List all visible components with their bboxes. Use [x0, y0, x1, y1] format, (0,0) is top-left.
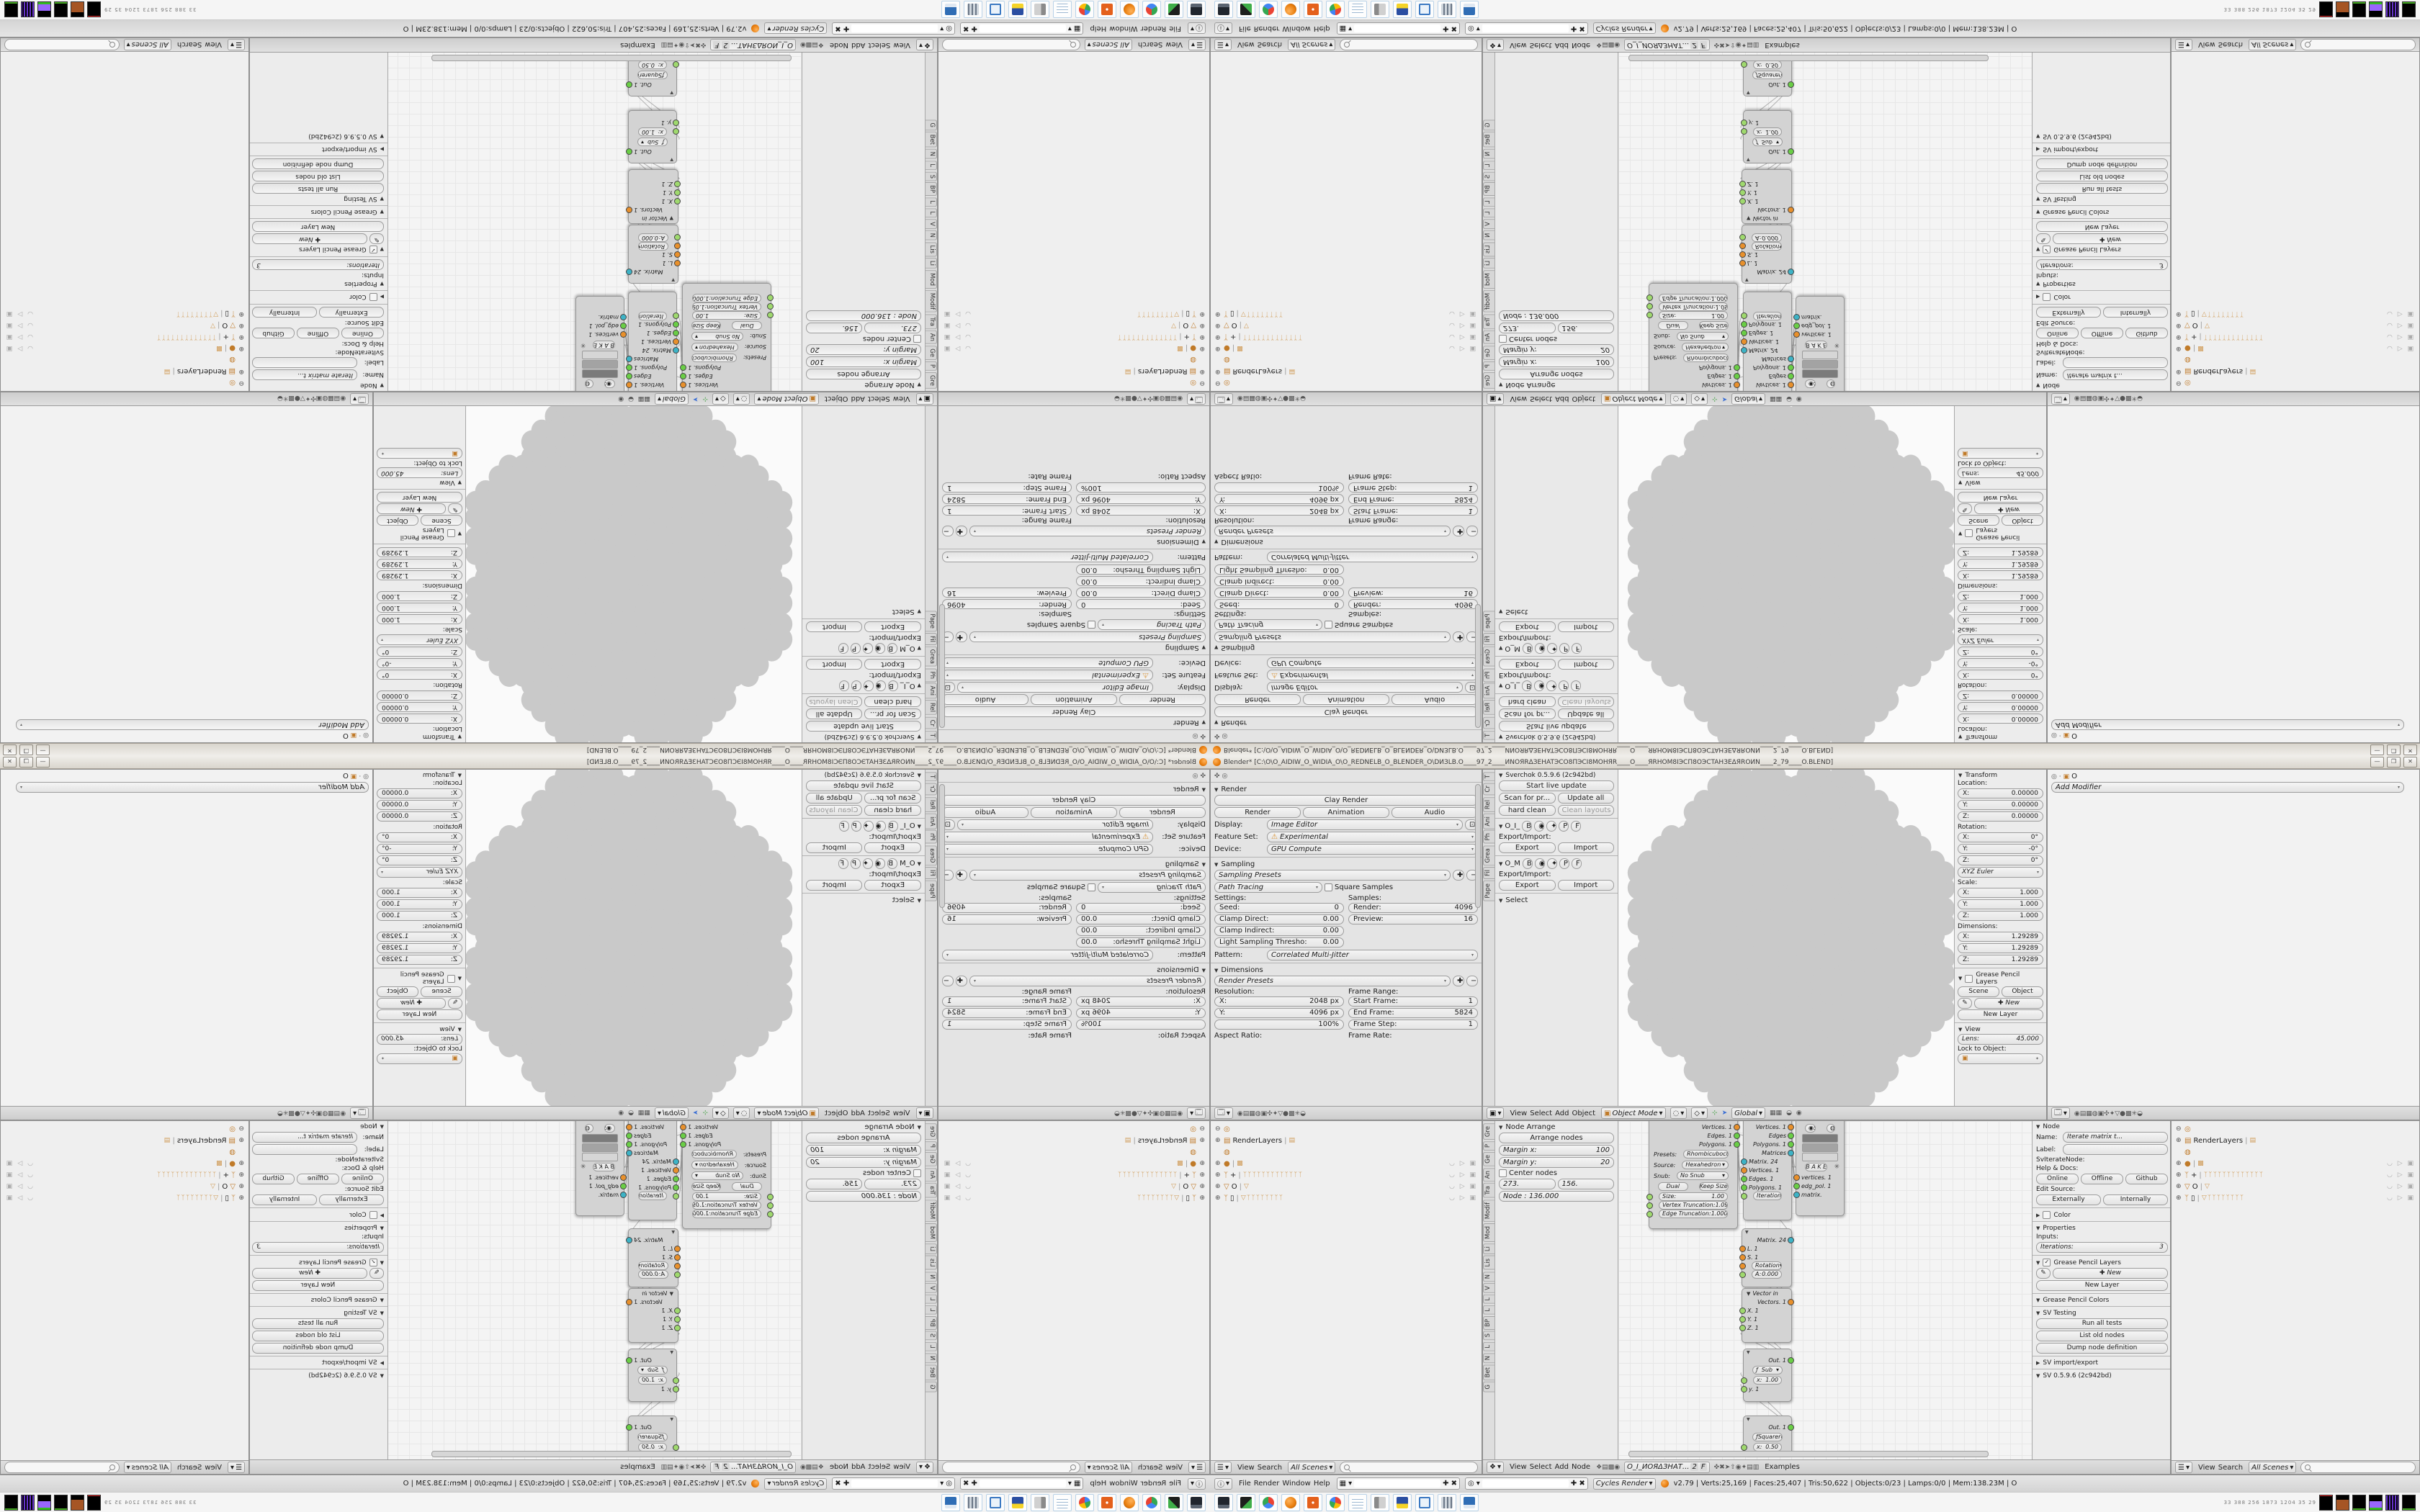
properties-tab-icon[interactable]: ▤: [2080, 1110, 2087, 1117]
screen-layout-selector[interactable]: ▦▾✚ ✖: [1337, 1477, 1460, 1490]
properties-tab-icon[interactable]: ▤: [2080, 395, 2087, 402]
taskbar-app-browser[interactable]: [1142, 1, 1161, 19]
scale-field[interactable]: Z:1.000: [1958, 911, 2043, 921]
outliner-row[interactable]: ⊕ᛉ▯|▽ᛉᛉᛉᛉᛉᛉᛉᛉ◡ ▷ ▣: [2172, 308, 2419, 320]
collapse-triangle-icon[interactable]: ▼: [1202, 968, 1206, 973]
gp-panel-title[interactable]: Grease Pencil Layers: [299, 246, 367, 253]
add-modifier-dropdown[interactable]: Add Modifier▾: [2051, 782, 2404, 793]
panel-title-render[interactable]: Render: [1173, 786, 1199, 793]
operation-dropdown[interactable]: ƒ Squareroot▾: [637, 1433, 668, 1441]
window-maximize-button[interactable]: ❐: [19, 744, 33, 755]
node-header-icon[interactable]: ▩: [1608, 41, 1615, 48]
socket-rotation[interactable]: [1739, 243, 1746, 249]
node-header-icon[interactable]: ▤: [1747, 1464, 1753, 1471]
panel-title-render[interactable]: Render: [1221, 719, 1247, 726]
window-close-button[interactable]: ✕: [3, 744, 17, 755]
node-header-icon[interactable]: ⇧: [684, 1464, 690, 1471]
vertex-truncation-field[interactable]: Vertex Truncation:1.094: [1659, 1201, 1728, 1210]
info-menu-item[interactable]: Render: [1139, 24, 1168, 32]
socket-vertices-in[interactable]: [673, 1167, 679, 1174]
dimension-field[interactable]: Z:1.29289: [1958, 955, 2043, 965]
gp-new-button[interactable]: ✚ New: [252, 233, 367, 244]
b-toggle-button[interactable]: B: [888, 680, 898, 691]
integrator-dropdown[interactable]: Path Tracing▾: [1098, 619, 1206, 630]
socket-polygons[interactable]: [1788, 364, 1794, 371]
outliner-row[interactable]: ⊕▽O|▽◡ ▷ ▣: [1211, 320, 1482, 331]
node-header-icon[interactable]: ➤: [690, 1464, 696, 1471]
import-button[interactable]: Import: [806, 621, 863, 632]
socket-x[interactable]: [1741, 61, 1747, 68]
node-collapse-icon[interactable]: ▼: [1799, 390, 1803, 391]
socket-edgpol-in[interactable]: [620, 1183, 627, 1189]
socket-size[interactable]: [1646, 1194, 1653, 1200]
socket-location[interactable]: [1739, 1246, 1746, 1252]
node-math-squareroot[interactable]: ▼ Out. 1 ƒ Squareroot▾ x:0.50: [1743, 58, 1792, 96]
properties-tab-icon[interactable]: ●: [295, 395, 300, 402]
node-menu-item[interactable]: Select: [866, 41, 892, 49]
dimension-field[interactable]: Z:1.29289: [377, 547, 462, 557]
node-toolshelf-tab[interactable]: Modif: [926, 290, 937, 312]
view3d-menu-item[interactable]: Select: [1528, 1110, 1554, 1117]
outliner-row[interactable]: ⊕▽O|▽◡ ▷ ▣: [938, 320, 1209, 331]
wire-toggle[interactable]: ◍: [1827, 379, 1835, 388]
node-header-icon[interactable]: ▩: [1608, 1464, 1615, 1471]
resolution-field[interactable]: Y:4096 px: [1214, 1008, 1344, 1018]
node-header-icon[interactable]: ❖: [818, 41, 824, 48]
presets-dropdown[interactable]: Rhombicuboctahedron▾: [691, 354, 737, 362]
node-toolshelf-tab[interactable]: L: [926, 1342, 937, 1351]
scale-field[interactable]: Y:1.000: [1958, 603, 2043, 613]
outliner-row[interactable]: ⊕●|▩◡ ▷ ▣: [2172, 343, 2419, 354]
dump-node-definition-button[interactable]: Dump node definition: [252, 1343, 384, 1354]
internally-button[interactable]: Internally: [252, 1194, 317, 1205]
gp-scene-tab[interactable]: Scene: [421, 515, 462, 526]
node-toolshelf-tab[interactable]: Ge: [1483, 346, 1494, 360]
node-iterate-matrix[interactable]: ▼ Vertices. 1 Edges Polygons. 1 Matrices…: [1743, 292, 1792, 391]
display-mode-dropdown[interactable]: All Scenes▾: [1085, 1462, 1132, 1473]
gp-panel-title[interactable]: Grease Pencil Layers: [2053, 1259, 2121, 1266]
keep-size-button[interactable]: Keep Size: [1699, 321, 1729, 330]
frame-range-field[interactable]: Frame Step:1: [942, 482, 1072, 492]
select-panel-title[interactable]: Select: [1505, 896, 1528, 904]
outliner-row[interactable]: ⊕ᛉ▯|▽ᛉᛉᛉᛉᛉᛉᛉᛉ◡ ▷ ▣: [1211, 1192, 1482, 1204]
tray-graph-icon[interactable]: [87, 2, 101, 18]
node-header-icon[interactable]: ▤: [812, 41, 818, 48]
outliner-row[interactable]: ⊕▽O|▽◡ ▷ ▣: [2172, 1181, 2419, 1192]
source-dropdown[interactable]: Hexahedron▾: [691, 1161, 738, 1169]
outliner-row[interactable]: ⊕▤RenderLayers|▤: [1211, 366, 1482, 377]
update-all-button[interactable]: Update all: [806, 708, 863, 719]
snub-dropdown[interactable]: No Snub▾: [691, 1171, 743, 1180]
toolshelf-tab[interactable]: Cr: [926, 716, 937, 729]
polygon-color-swatch[interactable]: [1802, 351, 1838, 359]
taskbar-app-speaker[interactable]: [1031, 1, 1049, 19]
editor-type-button[interactable]: 🗔▾: [350, 393, 369, 405]
view3d-menu-item[interactable]: View: [1508, 395, 1528, 403]
socket-z[interactable]: [674, 1325, 681, 1331]
start-live-update-button[interactable]: Start live update: [806, 721, 921, 732]
info-menu-item[interactable]: Window: [1281, 1480, 1312, 1488]
collapse-triangle-icon[interactable]: ▼: [458, 976, 462, 981]
keep-size-button[interactable]: Keep Size: [691, 321, 722, 330]
outliner-row[interactable]: ⊕▽O|▽◡ ▷ ▣: [2172, 320, 2419, 331]
taskbar-app-imageviewer[interactable]: [986, 1494, 1005, 1511]
collapse-triangle-icon[interactable]: ▼: [1958, 976, 1962, 981]
node-vector-in[interactable]: ▼Vector in Vectors. 1 X. 1 Y. 1 Z. 1: [628, 1288, 678, 1343]
node-header-icon[interactable]: ◉: [678, 41, 684, 48]
node-toolshelf-tab[interactable]: V: [926, 1283, 937, 1293]
bake-button[interactable]: B A K E: [593, 1163, 615, 1171]
info-menu-item[interactable]: Window: [1281, 24, 1312, 32]
gp-panel-title[interactable]: Grease Pencil Layers: [2053, 246, 2121, 253]
toolshelf-tab[interactable]: Pape: [926, 881, 937, 901]
grease-pencil-panel-title[interactable]: Grease Pencil Layers: [377, 526, 444, 541]
node-toolshelf-tab[interactable]: N: [1483, 1272, 1494, 1282]
properties-tab-icon[interactable]: ✳: [2132, 395, 2138, 402]
shading-dropdown[interactable]: ◌▾: [1670, 1107, 1688, 1119]
center-nodes-checkbox[interactable]: [913, 1169, 921, 1177]
bake-button[interactable]: B A K E: [593, 341, 615, 349]
node-viewer-draw[interactable]: ▼ ◉ Show◍ B A K E✳ vertices. 1 edg_pol. …: [1796, 1121, 1845, 1216]
layers-grid-icon[interactable]: ▦▦: [638, 1110, 650, 1117]
properties-tab-icon[interactable]: ▦: [1165, 1110, 1171, 1117]
frame-range-field[interactable]: End Frame:5824: [1348, 1008, 1478, 1018]
hard-clean-button[interactable]: hard clean: [1499, 696, 1556, 707]
location-field[interactable]: Y:0.00000: [377, 800, 462, 810]
socket-size[interactable]: [767, 1194, 774, 1200]
socket-x[interactable]: [673, 128, 679, 135]
gear-icon[interactable]: ✳: [581, 1164, 586, 1171]
properties-tab-icon[interactable]: ▤: [1171, 395, 1178, 402]
outliner-menu-item[interactable]: View: [2197, 41, 2217, 49]
resolution-field[interactable]: Y:4096 px: [1076, 494, 1206, 504]
node-menu-item[interactable]: Add: [850, 1463, 866, 1471]
clay-render-button[interactable]: Clay Render: [1214, 795, 1478, 806]
socket-size[interactable]: [1646, 312, 1653, 318]
outliner-menu-item[interactable]: View: [203, 41, 223, 49]
view3d-menu-item[interactable]: Object: [823, 395, 850, 403]
tray-graph-icon[interactable]: [2336, 2, 2349, 18]
view3d-menu-item[interactable]: Add: [850, 395, 866, 403]
center-nodes-checkbox[interactable]: [1499, 1169, 1507, 1177]
outliner-menu-item[interactable]: Search: [176, 1464, 203, 1472]
node-toolshelf-tab[interactable]: Gre: [1483, 1123, 1494, 1140]
node-collapse-icon[interactable]: ▼: [1747, 1121, 1750, 1122]
toolshelf-tab[interactable]: Cr: [1483, 716, 1494, 729]
outliner-row[interactable]: ⊖◎: [1211, 1123, 1482, 1135]
properties-tab-icon[interactable]: ▤: [1243, 1110, 1250, 1117]
transform-panel-title[interactable]: Transform: [423, 733, 455, 740]
scale-field[interactable]: X:1.000: [1958, 614, 2043, 624]
color-checkbox[interactable]: [369, 293, 377, 301]
node-header-icon[interactable]: ▤: [1602, 1464, 1608, 1471]
outliner-row[interactable]: ⊕ᛉ+|ᛉᛉᛉᛉᛉᛉᛉᛉᛉᛉᛉᛉᛉ◡ ▷ ▣: [938, 331, 1209, 343]
node-toolshelf-tab[interactable]: Li: [1483, 1243, 1494, 1254]
frame-range-field[interactable]: Frame Step:1: [1348, 482, 1478, 492]
size-field[interactable]: Size:1.00: [1659, 311, 1728, 320]
taskbar-app-browser[interactable]: [1259, 1494, 1278, 1511]
node-header-icon[interactable]: ⇧: [1730, 41, 1736, 48]
toolshelf-tab[interactable]: Fil: [926, 867, 937, 879]
node-collapse-icon[interactable]: ▼: [1747, 90, 1750, 95]
collapse-triangle-icon[interactable]: ▼: [918, 683, 921, 689]
editor-type-button[interactable]: ❖▾: [1487, 40, 1504, 51]
node-toolshelf-tab[interactable]: L: [926, 197, 937, 207]
x-field[interactable]: x:1.00: [638, 127, 667, 136]
node-toolshelf-tab[interactable]: N: [926, 1272, 937, 1282]
properties-tab-icon[interactable]: ◉: [1237, 1110, 1243, 1117]
node-vector-in[interactable]: ▼Vector in Vectors. 1 X. 1 Y. 1 Z. 1: [1742, 1288, 1792, 1343]
pencil-icon[interactable]: ✎: [369, 233, 384, 244]
node-header-icon[interactable]: ▥: [661, 41, 668, 48]
node-header-icon[interactable]: ◉: [800, 1464, 806, 1471]
node-menu-item[interactable]: Select: [1528, 1463, 1554, 1471]
render-camera-icon[interactable]: ◉: [1796, 1110, 1802, 1117]
sampling-presets-dropdown[interactable]: Sampling Presets▾: [969, 870, 1206, 881]
display-mode-dropdown[interactable]: All Scenes▾: [124, 1462, 171, 1473]
resolution-field[interactable]: 100%: [1214, 482, 1344, 492]
x-coordinate-field[interactable]: 273.: [865, 323, 922, 333]
collapse-triangle-icon[interactable]: ▼: [1958, 480, 1962, 485]
outliner-row[interactable]: ⊕ᛉ+|ᛉᛉᛉᛉᛉᛉᛉᛉᛉᛉᛉᛉᛉ◡ ▷ ▣: [1211, 1169, 1482, 1181]
internally-button[interactable]: Internally: [2103, 307, 2168, 318]
socket-edgpol-in[interactable]: [620, 323, 627, 329]
properties-tab-icon[interactable]: ▦: [1249, 1110, 1255, 1117]
editor-type-button[interactable]: ❖▾: [916, 40, 933, 51]
view3d-menu-item[interactable]: View: [892, 395, 912, 403]
fractal-mesh-object[interactable]: [465, 406, 802, 742]
audio-button[interactable]: Audio: [942, 807, 1028, 818]
taskbar-app-notepad[interactable]: [1348, 1494, 1367, 1511]
edge-color-swatch[interactable]: [582, 1143, 618, 1152]
internally-button[interactable]: Internally: [2103, 1194, 2168, 1205]
collapse-triangle-icon[interactable]: ▼: [458, 773, 462, 778]
properties-tab-icon[interactable]: ▦: [1249, 395, 1255, 402]
snub-dropdown[interactable]: No Snub▾: [1677, 332, 1729, 341]
outliner-row[interactable]: ◍: [1211, 354, 1482, 366]
socket-matrix-in[interactable]: [1741, 347, 1747, 354]
properties-tab-icon[interactable]: ▦: [1165, 395, 1171, 402]
display-mode-dropdown[interactable]: All Scenes▾: [1288, 39, 1335, 50]
collapse-triangle-icon[interactable]: ▼: [1499, 824, 1502, 829]
node-canvas[interactable]: ▼ Vertices. 1 Edges. 1 Polygons. 1 Prese…: [388, 53, 802, 391]
keep-size-button[interactable]: Keep Size: [1699, 1182, 1729, 1191]
editor-type-button[interactable]: ☰▾: [1188, 1462, 1206, 1473]
properties-tab-icon[interactable]: ◉: [1177, 395, 1183, 402]
rotation-order-dropdown[interactable]: XYZ Euler▾: [377, 634, 462, 645]
tray-graph-icon[interactable]: [54, 1495, 68, 1511]
samples-field[interactable]: Preview:16: [1348, 914, 1478, 924]
node-toolshelf-tab[interactable]: Modif: [1483, 290, 1494, 312]
taskbar-app-blender[interactable]: [1120, 1494, 1139, 1511]
scrollbar[interactable]: [939, 784, 945, 908]
taskbar-app-monitor[interactable]: [1187, 1, 1206, 19]
presets-dropdown[interactable]: Rhombicuboctahedron▾: [1683, 354, 1729, 362]
node-toolshelf-tab[interactable]: Tra: [926, 314, 937, 329]
add-preset-button[interactable]: ✚: [956, 870, 967, 881]
scale-field[interactable]: Z:1.000: [1958, 591, 2043, 601]
sampling-setting-field[interactable]: Clamp Direct:0.00: [1076, 588, 1206, 598]
outliner-row[interactable]: ⊕ᛉ+|ᛉᛉᛉᛉᛉᛉᛉᛉᛉᛉᛉᛉᛉ◡ ▷ ▣: [2172, 1169, 2419, 1181]
scan-properties-button[interactable]: Scan for pr...: [1499, 708, 1556, 719]
panel-title-render[interactable]: Render: [1221, 786, 1247, 793]
screen-layout-selector[interactable]: ▦▾✚ ✖: [1337, 22, 1460, 35]
socket-vertex-truncation[interactable]: [767, 1202, 774, 1209]
socket-matrix-in[interactable]: [1793, 1192, 1800, 1198]
screen-layout-selector[interactable]: ▦▾✚ ✖: [960, 22, 1083, 35]
view3d-menu-item[interactable]: Select: [866, 395, 892, 403]
properties-tab-icon[interactable]: ●: [1283, 395, 1289, 402]
gp-new-layer-button[interactable]: New Layer: [1958, 492, 2043, 503]
outliner-search-input[interactable]: [2300, 39, 2416, 50]
node-toolshelf-tab[interactable]: Gre: [926, 1123, 937, 1140]
x-coordinate-field[interactable]: 273.: [1499, 323, 1556, 333]
properties-tab-icon[interactable]: ✳: [283, 1110, 289, 1117]
view-panel-title[interactable]: View: [439, 479, 454, 486]
taskbar-app-speaker[interactable]: [1371, 1, 1389, 19]
collapse-triangle-icon[interactable]: ▼: [1499, 646, 1502, 652]
viewport-canvas[interactable]: [465, 770, 802, 1106]
outliner-row[interactable]: ⊕▽O|▽◡ ▷ ▣: [1, 1181, 248, 1192]
externally-button[interactable]: Externally: [2036, 1194, 2101, 1205]
feature-set-dropdown[interactable]: ⚠ Experimental▾: [1267, 670, 1478, 680]
node-name-input[interactable]: Iterate matrix t...: [2063, 1132, 2168, 1143]
scale-field[interactable]: X:1.000: [377, 614, 462, 624]
gp-object-tab[interactable]: Object: [377, 515, 418, 526]
properties-tab-icon[interactable]: ◍: [322, 1110, 328, 1117]
socket-rotation[interactable]: [674, 1263, 681, 1269]
b-toggle-button[interactable]: B: [888, 821, 898, 832]
render-presets-dropdown[interactable]: Render Presets▾: [1214, 976, 1451, 986]
arrange-nodes-button[interactable]: Arrange nodes: [806, 1133, 921, 1143]
node-collapse-icon[interactable]: ▼: [1652, 390, 1656, 391]
node-toolshelf-tab[interactable]: L: [926, 1305, 937, 1315]
socket-scale[interactable]: [674, 1254, 681, 1261]
sv-version-panel-title[interactable]: SV 0.5.9.6 (2c942bd): [2043, 132, 2111, 140]
screen-layout-selector[interactable]: ▦▾✚ ✖: [960, 1477, 1083, 1490]
properties-tab-icon[interactable]: ◉: [1237, 395, 1243, 402]
rotation-field[interactable]: Y:-0°: [377, 844, 462, 854]
properties-tab-icon[interactable]: ◒: [2137, 395, 2143, 402]
socket-matrix-out[interactable]: [1788, 1237, 1794, 1243]
socket-z[interactable]: [1739, 1325, 1746, 1331]
socket-vertices-in[interactable]: [1793, 331, 1800, 338]
socket-edges[interactable]: [626, 1133, 632, 1139]
y-coordinate-field[interactable]: 156.: [806, 323, 863, 333]
node-name-input[interactable]: Iterate matrix t...: [252, 369, 357, 380]
manipulator-move-icon[interactable]: ➤: [1722, 395, 1728, 402]
sv-testing-panel-title[interactable]: SV Testing: [344, 195, 377, 202]
properties-tab-icon[interactable]: ✣: [310, 1110, 316, 1117]
socket-location[interactable]: [674, 260, 681, 266]
socket-out[interactable]: [626, 148, 632, 155]
taskbar-app-browser2[interactable]: [1326, 1, 1345, 19]
manipulator-axis-icon[interactable]: ⊹: [702, 1110, 708, 1117]
properties-tab-icon[interactable]: ▤: [334, 395, 341, 402]
node-menu-item[interactable]: Add: [850, 41, 866, 49]
collapse-triangle-icon[interactable]: ▼: [918, 1125, 921, 1130]
outliner-menu-item[interactable]: Search: [2217, 1464, 2244, 1472]
export-button[interactable]: Export: [1499, 880, 1556, 891]
gp-new-button[interactable]: ✚ New: [1974, 998, 2043, 1009]
socket-z[interactable]: [674, 181, 681, 187]
presets-dropdown[interactable]: Rhombicuboctahedron▾: [1683, 1150, 1729, 1158]
editor-type-button[interactable]: 🗔▾: [1214, 1107, 1233, 1119]
node-toolshelf-tab[interactable]: L: [1483, 208, 1494, 217]
socket-matrix-out[interactable]: [1788, 269, 1794, 275]
hard-clean-button[interactable]: hard clean: [865, 805, 922, 816]
properties-tab-icon[interactable]: ◒: [277, 395, 283, 402]
socket-matrix-out[interactable]: [626, 269, 632, 275]
pin-icon[interactable]: ✜: [1214, 732, 1220, 739]
pencil-icon[interactable]: ✎: [1958, 998, 1972, 1009]
gp-object-tab[interactable]: Object: [2002, 986, 2043, 997]
node-collapse-icon[interactable]: ▼: [617, 390, 621, 391]
socket-matrix-in[interactable]: [1793, 314, 1800, 320]
node-toolshelf-tab[interactable]: L: [926, 161, 937, 170]
properties-tab-icon[interactable]: ▽: [1137, 1110, 1142, 1117]
socket-vertices[interactable]: [626, 1124, 632, 1130]
node-count-field[interactable]: Node : 136.000: [1499, 310, 1614, 321]
rotation-field[interactable]: X:0°: [1958, 832, 2043, 842]
edge-truncation-field[interactable]: Edge Truncation:1.000: [692, 294, 761, 302]
socket-iterations[interactable]: [1741, 312, 1747, 319]
collapse-triangle-icon[interactable]: ▼: [458, 480, 462, 485]
internally-button[interactable]: Internally: [252, 307, 317, 318]
arrange-nodes-button[interactable]: Arrange nodes: [806, 369, 921, 379]
wrench-icon[interactable]: ✦: [1546, 821, 1556, 832]
clean-layouts-button[interactable]: Clean layouts: [806, 805, 863, 816]
select-panel-title[interactable]: Select: [1505, 608, 1528, 616]
rotation-field[interactable]: Z:0°: [377, 647, 462, 657]
node-header-icon[interactable]: ✜: [701, 1464, 707, 1471]
visibility-eye-icon[interactable]: ◉: [876, 821, 886, 832]
outliner-row[interactable]: ⊖◎: [2172, 1123, 2419, 1135]
sv-import-export-panel-title[interactable]: SV import/export: [2043, 145, 2098, 153]
render-presets-dropdown[interactable]: Render Presets▾: [1214, 526, 1451, 536]
node-toolshelf-tab[interactable]: N: [1483, 1353, 1494, 1363]
properties-tab-icon[interactable]: ◒: [2137, 1110, 2143, 1117]
node-matrix-in[interactable]: ▼ Matrix. 24 L. 1 S. 1 Rotation▾ A:0.000: [1742, 1228, 1792, 1287]
samples-field[interactable]: Preview:16: [942, 914, 1072, 924]
socket-vertices-in[interactable]: [620, 331, 627, 338]
clean-layouts-button[interactable]: Clean layouts: [806, 696, 863, 707]
shading-dropdown[interactable]: ◌▾: [733, 393, 750, 405]
rotation-dropdown[interactable]: Rotation▾: [638, 1261, 668, 1270]
properties-tab-icon[interactable]: ◉: [340, 1110, 346, 1117]
run-all-tests-button[interactable]: Run all tests: [2036, 1318, 2168, 1329]
node-panel-title[interactable]: Node: [360, 382, 377, 389]
color-checkbox[interactable]: [369, 1211, 377, 1219]
offline-button[interactable]: Offline: [2081, 1174, 2123, 1184]
tray-graph-icon[interactable]: [2369, 1495, 2383, 1511]
node-toolshelf-tab[interactable]: BP: [926, 1316, 937, 1330]
node-toolshelf-tab[interactable]: Lis: [926, 242, 937, 256]
feature-set-dropdown[interactable]: ⚠ Experimental▾: [942, 670, 1153, 680]
node-panel-title[interactable]: Node: [2043, 1123, 2060, 1130]
tray-graph-icon[interactable]: [2385, 1495, 2399, 1511]
node-header-icon[interactable]: ▥: [1753, 41, 1760, 48]
dimension-field[interactable]: X:1.29289: [377, 570, 462, 580]
info-menu-item[interactable]: Render: [1139, 1480, 1168, 1488]
properties-tab-icon[interactable]: ▩: [1125, 1110, 1131, 1117]
info-menu-item[interactable]: Render: [1252, 24, 1281, 32]
outliner-row[interactable]: ⊕ᛉ+|ᛉᛉᛉᛉᛉᛉᛉᛉᛉᛉᛉᛉᛉ◡ ▷ ▣: [1, 331, 248, 343]
render-button[interactable]: Render: [1214, 694, 1301, 705]
examples-menu[interactable]: Examples: [1763, 41, 1801, 49]
socket-vectors-out[interactable]: [626, 207, 632, 213]
properties-panel-title[interactable]: Properties: [2043, 280, 2075, 287]
